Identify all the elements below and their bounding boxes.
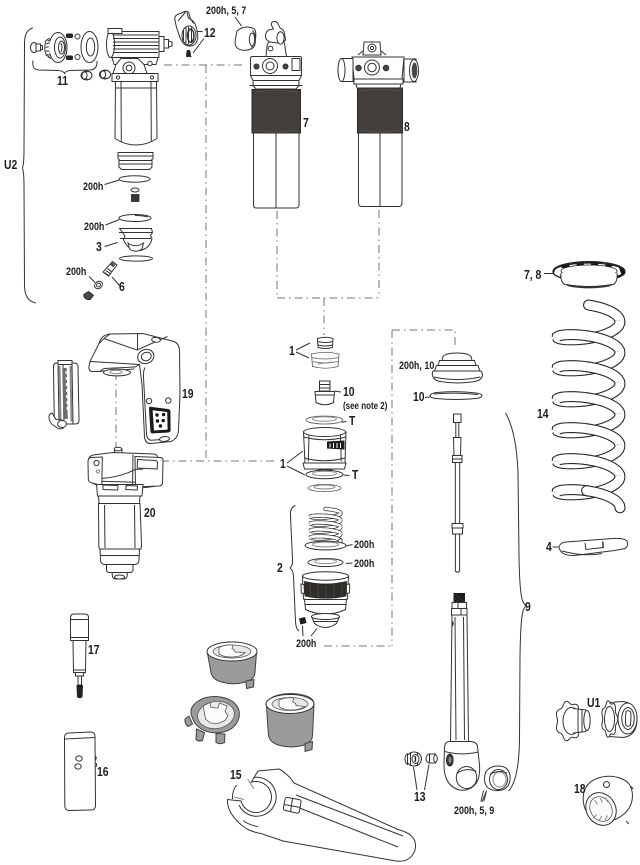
- svg-text:200h, 10: 200h, 10: [399, 360, 435, 372]
- svg-text:200h: 200h: [84, 221, 104, 233]
- svg-text:18: 18: [574, 782, 586, 796]
- svg-text:2: 2: [277, 561, 283, 575]
- svg-text:17: 17: [88, 643, 100, 657]
- svg-text:7, 8: 7, 8: [524, 268, 542, 282]
- svg-text:1: 1: [289, 344, 295, 358]
- svg-text:19: 19: [182, 387, 194, 401]
- svg-text:200h, 5, 7: 200h, 5, 7: [206, 5, 247, 17]
- svg-text:14: 14: [537, 407, 549, 421]
- svg-text:6: 6: [119, 280, 125, 294]
- svg-text:T: T: [349, 414, 356, 428]
- svg-text:200h, 5, 9: 200h, 5, 9: [454, 805, 495, 817]
- svg-text:(see note 2): (see note 2): [343, 400, 387, 411]
- svg-text:T: T: [352, 468, 359, 482]
- svg-text:8: 8: [404, 120, 410, 134]
- svg-text:12: 12: [204, 26, 216, 40]
- svg-text:10: 10: [343, 385, 355, 399]
- svg-text:200h: 200h: [354, 558, 374, 570]
- svg-text:16: 16: [97, 765, 109, 779]
- svg-text:U2: U2: [4, 158, 18, 172]
- svg-text:3: 3: [96, 240, 102, 254]
- svg-text:10: 10: [413, 390, 425, 404]
- svg-text:200h: 200h: [66, 266, 86, 278]
- svg-text:20: 20: [144, 506, 156, 520]
- svg-text:11: 11: [57, 74, 68, 88]
- svg-text:7: 7: [303, 116, 309, 130]
- svg-text:1: 1: [280, 457, 286, 471]
- svg-text:4: 4: [546, 540, 552, 554]
- svg-text:200h: 200h: [354, 539, 374, 551]
- svg-text:200h: 200h: [296, 638, 316, 650]
- svg-text:9: 9: [525, 600, 531, 614]
- svg-text:200h: 200h: [83, 181, 103, 193]
- svg-text:15: 15: [230, 768, 242, 782]
- svg-text:13: 13: [414, 790, 426, 804]
- svg-text:U1: U1: [587, 696, 601, 710]
